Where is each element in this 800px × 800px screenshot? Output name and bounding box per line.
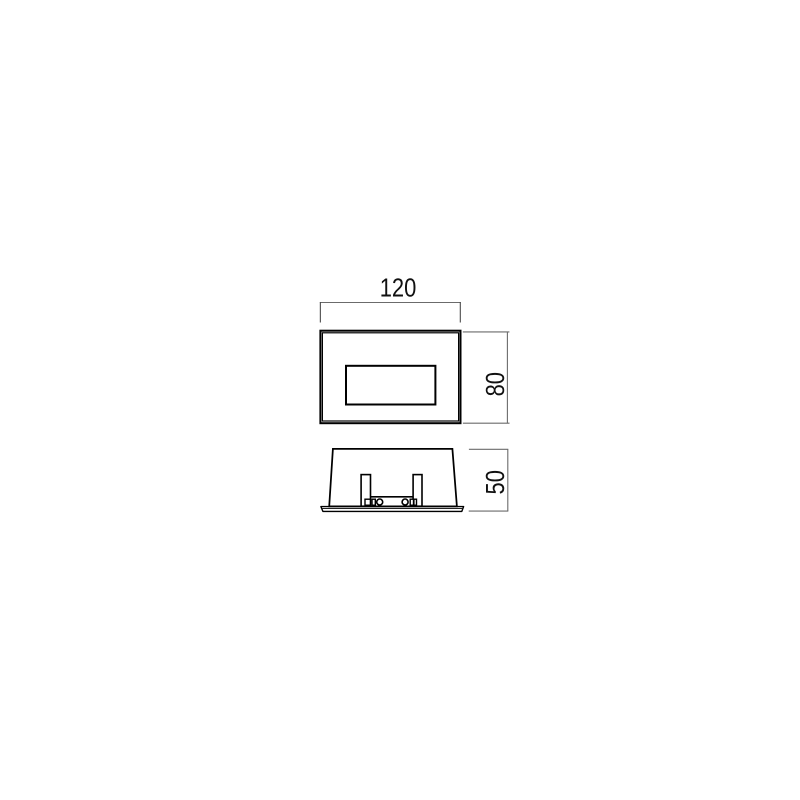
- svg-text:80: 80: [481, 372, 510, 396]
- svg-text:120: 120: [380, 274, 417, 303]
- svg-text:50: 50: [481, 470, 510, 494]
